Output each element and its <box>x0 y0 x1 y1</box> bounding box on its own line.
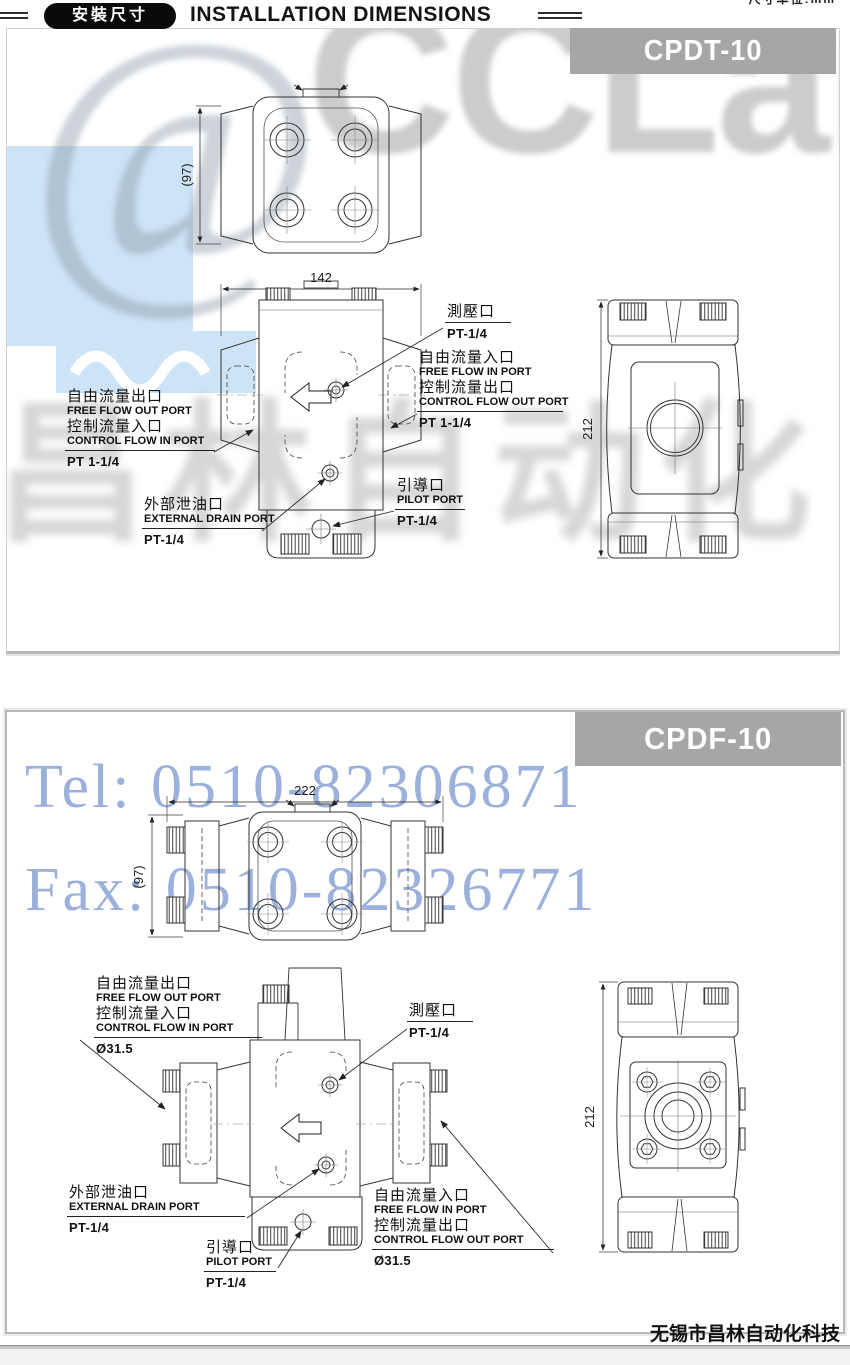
p2-dim-height <box>599 982 618 1252</box>
p2-dim-depth-text: (97) <box>131 865 146 888</box>
p2-dim-height-text: 212 <box>582 1106 597 1128</box>
header-rule-left-top <box>0 12 28 14</box>
footer-company-name: 无锡市昌林自动化科技 <box>650 1319 840 1346</box>
p2-side-view <box>617 982 745 1252</box>
p1-side-view <box>607 300 743 558</box>
p2-top-bolts <box>247 821 363 935</box>
page-title: INSTALLATION DIMENSIONS <box>190 3 491 27</box>
header-rule-left-bottom <box>0 17 28 19</box>
p2-label-free-in-control-out: 自由流量入口 FREE FLOW IN PORT 控制流量出口 CONTROL … <box>374 1187 554 1268</box>
p2-dim-width-text: 222 <box>294 783 316 798</box>
p2-top-view <box>167 800 443 940</box>
p2-pilot-port-circle <box>290 1209 316 1235</box>
header-rule-right-bottom <box>538 17 582 19</box>
catalog-page: 安裝尺寸 INSTALLATION DIMENSIONS 尺寸单位:mm @ C… <box>0 0 850 1365</box>
p1-dim-width-text: 142 <box>310 270 332 285</box>
p2-dim-width <box>167 796 443 822</box>
p2-label-pilot-port: 引導口 PILOT PORT PT-1/4 <box>206 1239 276 1290</box>
p2-label-free-out-control-in: 自由流量出口 FREE FLOW OUT PORT 控制流量入口 CONTROL… <box>96 975 262 1056</box>
p1-dim-depth-text: (97) <box>179 163 194 186</box>
p2-label-gauge-port: 測壓口 PT-1/4 <box>409 1002 473 1040</box>
technical-drawing-svg: (97) 142 212 222 (97) 212 <box>0 0 850 1365</box>
p1-pilot-port-circle <box>306 514 336 544</box>
p1-top-view <box>221 85 421 253</box>
p2-gauge-port-circle <box>318 1073 342 1097</box>
footer-rule <box>0 1345 850 1349</box>
p1-dim-height-text: 212 <box>580 418 595 440</box>
p2-label-external-drain-port: 外部泄油口 EXTERNAL DRAIN PORT PT-1/4 <box>69 1184 245 1235</box>
p2-drain-port-circle <box>314 1153 338 1177</box>
p1-label-free-in-control-out: 自由流量入口 FREE FLOW IN PORT 控制流量出口 CONTROL … <box>419 349 569 430</box>
p1-label-free-out-control-in: 自由流量出口 FREE FLOW OUT PORT 控制流量入口 CONTROL… <box>67 388 215 469</box>
p1-flow-direction-arrow <box>291 383 331 411</box>
p1-dim-depth <box>196 106 221 244</box>
p2-flow-direction-arrow <box>281 1114 321 1142</box>
unit-note-fragment: 尺寸单位:mm <box>749 0 836 6</box>
p1-label-gauge-port: 測壓口 PT-1/4 <box>447 303 511 341</box>
p1-label-pilot-port: 引導口 PILOT PORT PT-1/4 <box>397 477 465 528</box>
p1-label-external-drain-port: 外部泄油口 EXTERNAL DRAIN PORT PT-1/4 <box>144 496 275 547</box>
header-rule-right-top <box>538 12 582 14</box>
section-badge: 安裝尺寸 <box>44 3 176 29</box>
p1-top-bolts <box>263 116 379 234</box>
footer-strip <box>0 1349 850 1365</box>
